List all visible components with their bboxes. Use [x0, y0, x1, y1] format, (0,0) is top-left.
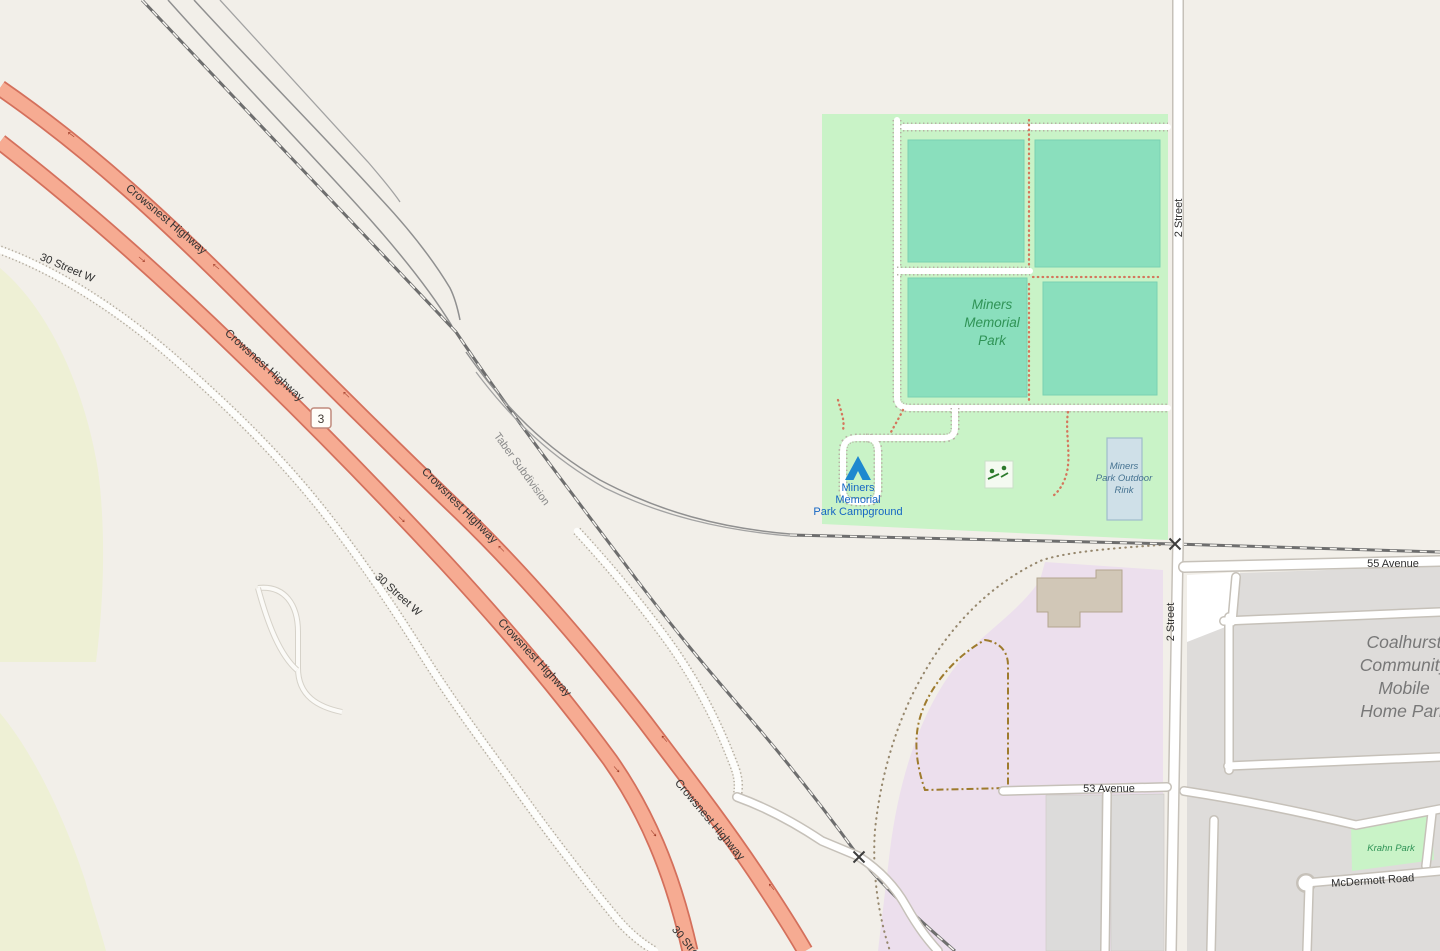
residential-block	[1111, 794, 1164, 951]
svg-text:Miners: Miners	[1110, 461, 1139, 472]
sports-pitch	[908, 140, 1024, 262]
map-canvas[interactable]: → → → → → → → → → → 3 Crowsnest Highway …	[0, 0, 1440, 951]
street-label-53-avenue: 53 Avenue	[1083, 783, 1135, 795]
street-label-2-street: 2 Street	[1173, 199, 1185, 238]
svg-text:Coalhurst: Coalhurst	[1367, 632, 1440, 652]
svg-text:Miners: Miners	[972, 297, 1013, 312]
sports-pitch	[1035, 140, 1160, 267]
svg-text:Park Outdoor: Park Outdoor	[1096, 473, 1153, 484]
krahn-park-label: Krahn Park	[1367, 843, 1416, 854]
svg-text:Rink: Rink	[1114, 485, 1134, 496]
sports-pitch	[908, 278, 1027, 397]
highway-shield-number: 3	[318, 412, 325, 426]
sports-pitch	[1043, 282, 1157, 395]
svg-text:Park Campground: Park Campground	[813, 506, 902, 518]
svg-text:Community: Community	[1360, 655, 1440, 675]
svg-text:Mobile: Mobile	[1378, 678, 1430, 698]
playground-icon	[985, 461, 1013, 488]
svg-text:Home Park: Home Park	[1360, 701, 1440, 721]
svg-text:Park: Park	[978, 333, 1007, 348]
svg-text:Memorial: Memorial	[964, 315, 1021, 330]
highway-shield: 3	[311, 408, 331, 428]
street-label-55-avenue: 55 Avenue	[1367, 558, 1419, 570]
residential-block	[1046, 795, 1102, 951]
svg-text:Miners: Miners	[841, 482, 875, 494]
svg-text:Memorial: Memorial	[835, 494, 880, 506]
map-viewport[interactable]: → → → → → → → → → → 3 Crowsnest Highway …	[0, 0, 1440, 951]
street-label-2-street: 2 Street	[1165, 603, 1177, 642]
